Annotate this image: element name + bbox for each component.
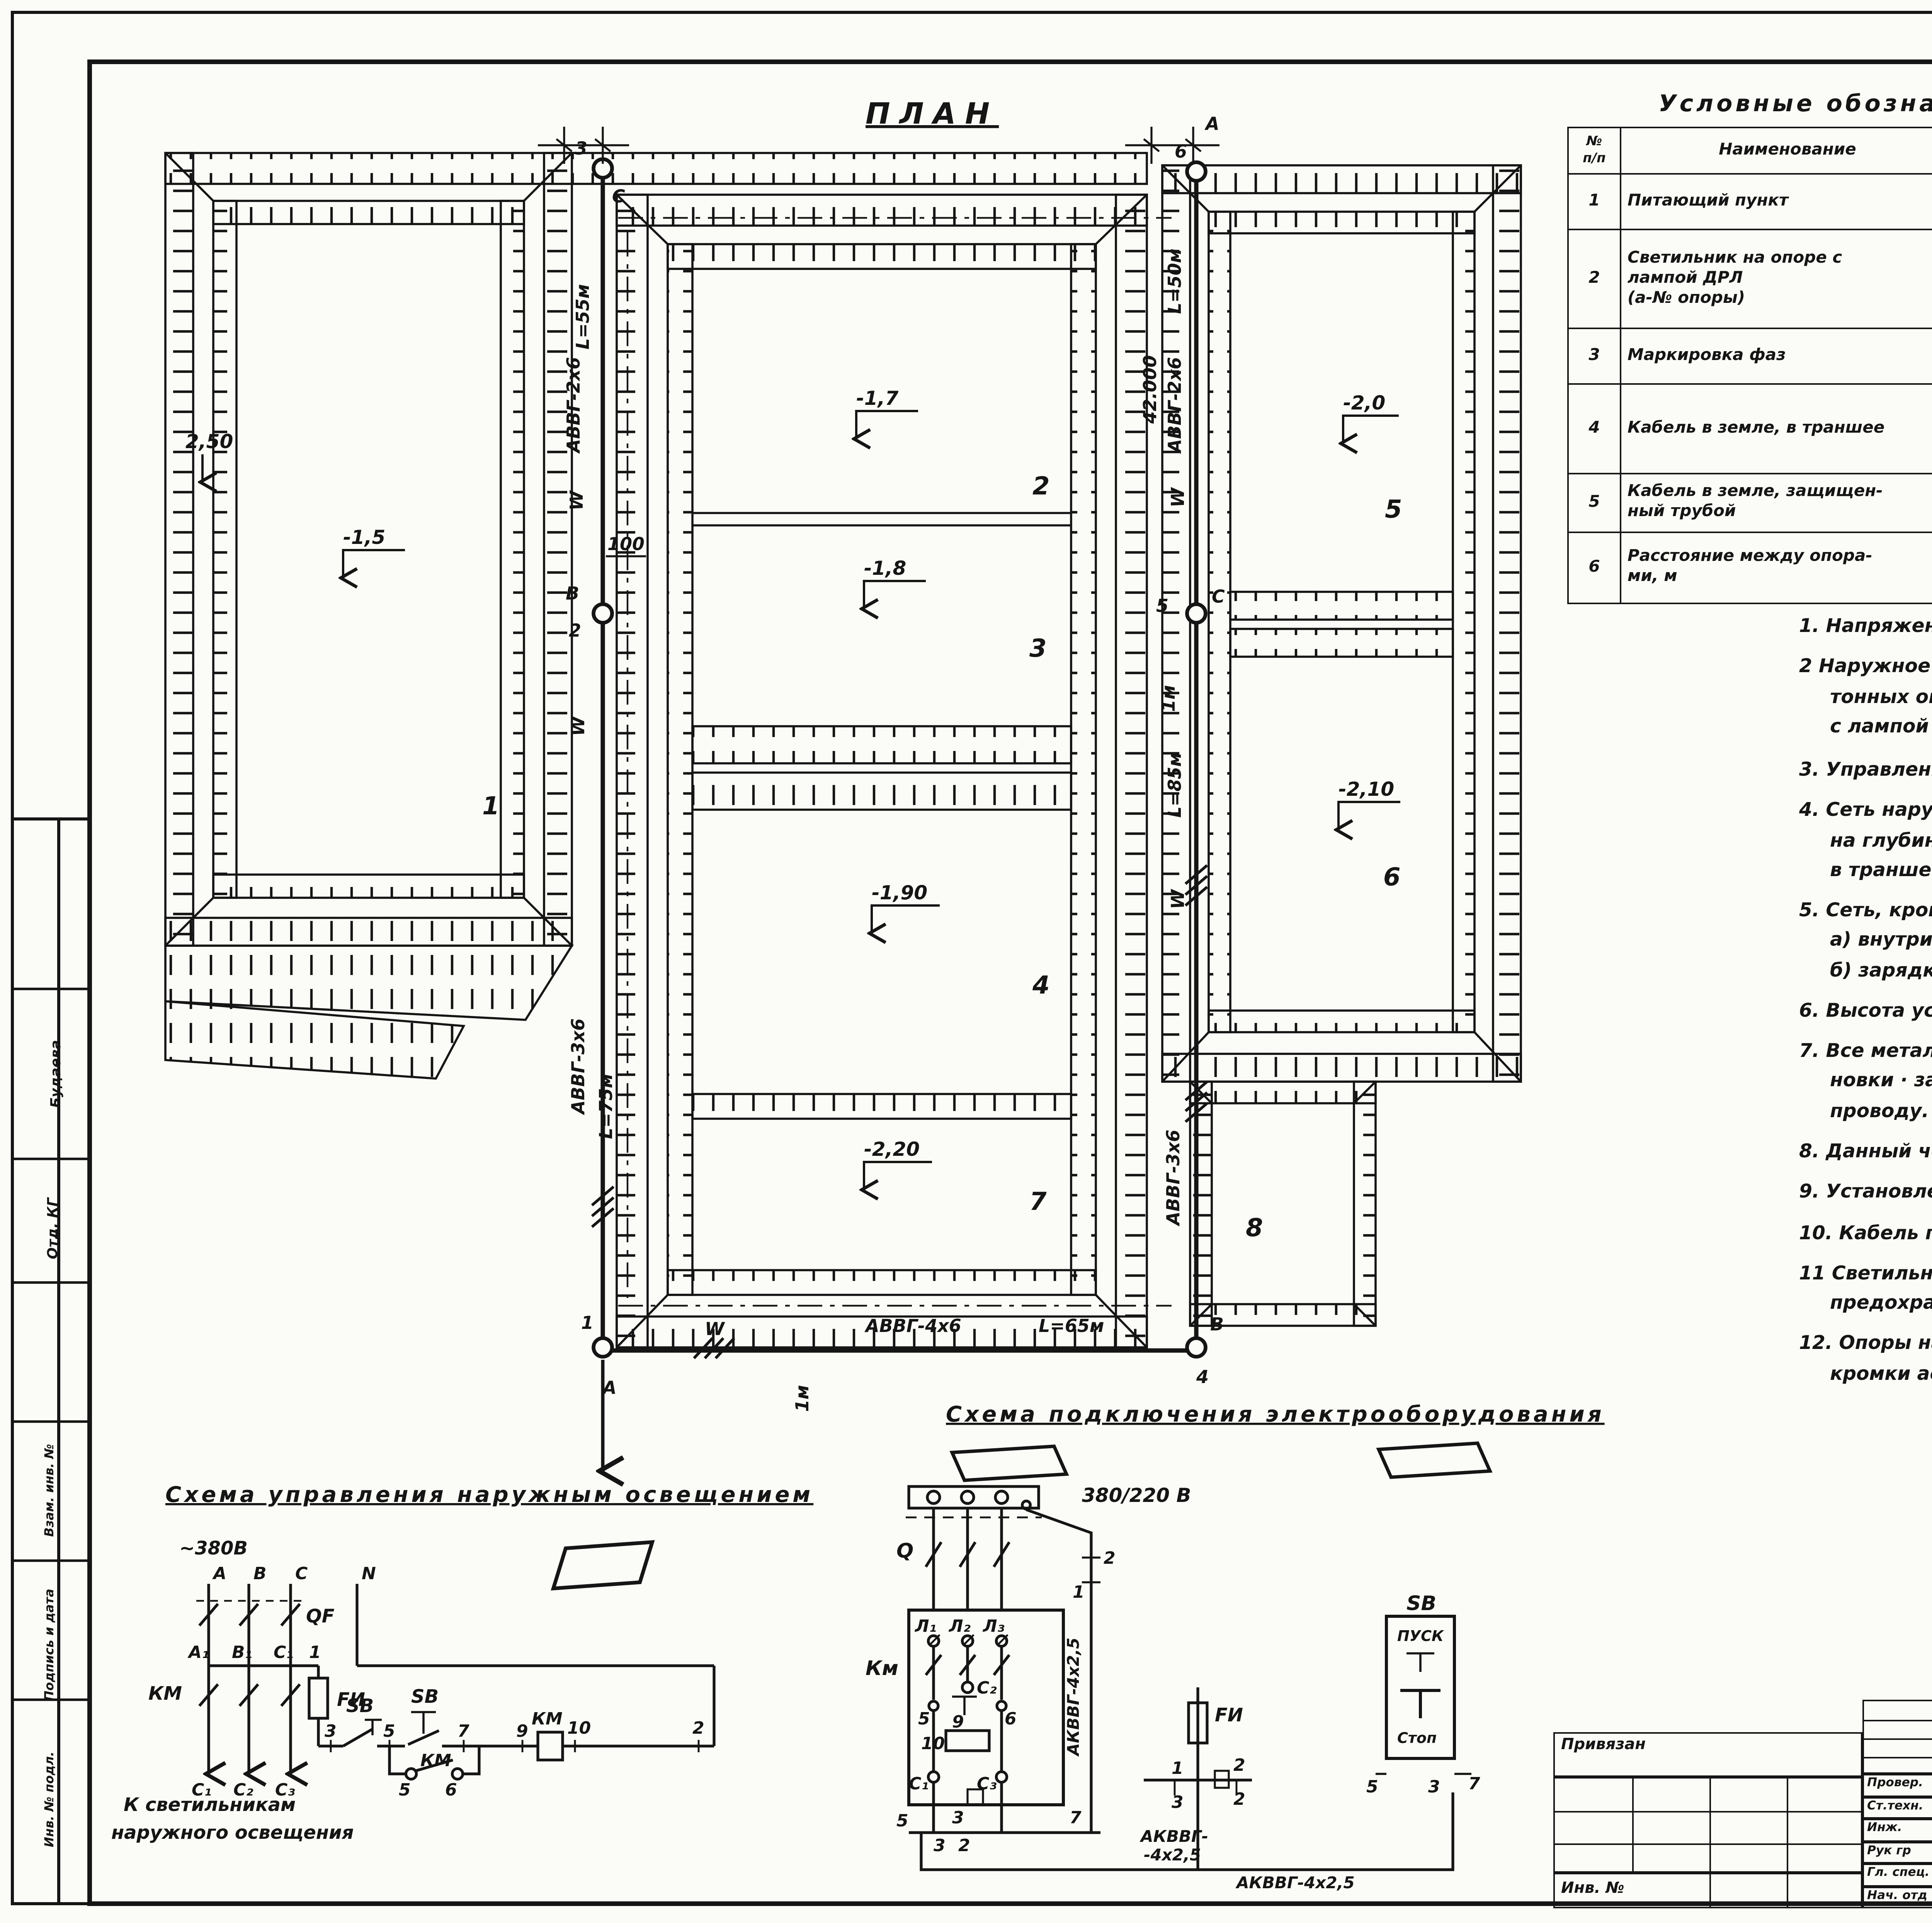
s2-s3: 3	[1428, 1777, 1440, 1797]
legend-r6-name: Расстояние между опора- ми, м	[1621, 532, 1932, 603]
s1-n2: 2	[692, 1718, 704, 1738]
level-250: 2,50	[185, 430, 233, 453]
legend-r6-num: 6	[1568, 532, 1621, 603]
s2-l1: Л₁	[914, 1616, 937, 1636]
pond-4-number: 4	[1032, 971, 1050, 1000]
legend-r4-name: Кабель в земле, в траншее	[1621, 384, 1932, 473]
legend-title: Условные обозначения	[1567, 90, 1932, 117]
s2-k9: 9	[952, 1712, 964, 1732]
legend-col-name: Наименование	[1621, 127, 1932, 174]
scheme-control: Схема управления наружным освещением	[111, 1482, 813, 1843]
notes-block: 1. Напряжение сети 380/220в. 2 Наружное …	[1799, 612, 1932, 1400]
note-6: 6. Высота установки светильников на опор…	[1799, 997, 1932, 1026]
pond-embankments	[165, 153, 1521, 1347]
s2-cable3: АКВВГ-4х2,5	[1235, 1873, 1355, 1892]
margin-inv-podl: Инв. № подл.	[43, 1722, 56, 1877]
pole-3-number: 3	[575, 138, 587, 159]
depth-2: -1,7	[856, 387, 899, 409]
s2-tick2: 2	[1104, 1548, 1116, 1568]
note-7: 7. Все металлические нетоковедущие части…	[1799, 1037, 1932, 1126]
note-10: 10. Кабель под дорогой проложить в асбес…	[1799, 1218, 1932, 1248]
legend-r3-name: Маркировка фаз	[1621, 329, 1932, 384]
s1-n10: 10	[567, 1718, 591, 1738]
s2-cable-vertical: АКВВГ-4х2,5	[1064, 1638, 1083, 1757]
s1-neutral: N	[362, 1564, 376, 1583]
dim-1m-right: 1м	[1158, 685, 1179, 712]
cable-l85: L=85м	[1164, 752, 1185, 817]
s2-f1: 1	[1172, 1758, 1184, 1778]
s1-sb2: SB	[411, 1686, 439, 1707]
s1-b1: В₁	[232, 1643, 252, 1662]
cable-avvg3x6-left: АВВГ-3х6	[568, 1018, 588, 1115]
s2-k6: 6	[1005, 1709, 1017, 1729]
legend-r1-num: 1	[1568, 174, 1621, 230]
note-4: 4. Сеть наружного освещения выполнена ка…	[1799, 796, 1932, 885]
s1-qf-label: QF	[306, 1605, 335, 1627]
s1-phase-c: С	[295, 1564, 308, 1583]
pole-4-phase: В	[1210, 1314, 1224, 1335]
depth-4: -1,90	[872, 882, 927, 904]
note-8: 8. Данный чертеж выполнен на основании г…	[1799, 1137, 1932, 1167]
cable-w3: W	[1167, 487, 1188, 507]
cable-avvg2x6-left: АВВГ-2х6	[563, 357, 584, 454]
scheme-connection: Схема подключения электрооборудования	[866, 1402, 1605, 1892]
s2-pusk: ПУСК	[1397, 1627, 1444, 1644]
pole-5-phase: С	[1212, 586, 1225, 607]
margin-otd-kg: Отд. КГ	[46, 1159, 62, 1298]
note-11: 11 Светильники на опорах присоединяются …	[1799, 1259, 1932, 1318]
s2-b3: 3	[952, 1808, 964, 1828]
s1-c1: С₁	[274, 1643, 294, 1662]
pond-7-number: 7	[1029, 1187, 1047, 1216]
s2-l2: Л₂	[948, 1616, 971, 1636]
pole-6-number: 6	[1175, 141, 1187, 162]
plan-title: ПЛАН	[866, 96, 999, 131]
s2-voltage: 380/220 В	[1082, 1484, 1191, 1507]
depth-5: -2,0	[1343, 392, 1385, 414]
legend-r4-num: 4	[1568, 384, 1621, 473]
pond-3-number: 3	[1029, 634, 1047, 663]
s2-cc3: С₃	[977, 1774, 997, 1794]
s2-fuse-label: FИ	[1215, 1704, 1243, 1726]
depth-3: -1,8	[864, 557, 906, 579]
margin-podpis: Подпись и дата	[43, 1568, 56, 1722]
s2-s7: 7	[1468, 1774, 1480, 1794]
margin-vzam: Взам. инв. №	[43, 1413, 56, 1568]
s1-sb1: SB	[346, 1695, 374, 1717]
pond-6-number: 6	[1383, 863, 1401, 892]
s1-km-label: КМ	[148, 1683, 182, 1704]
s1-voltage: ~380В	[179, 1537, 248, 1559]
s2-stop: Стоп	[1397, 1729, 1437, 1746]
s2-cable2-line2: -4х2,5	[1144, 1845, 1201, 1864]
cable-w5: W	[705, 1318, 725, 1339]
s2-sb-label: SB	[1406, 1592, 1436, 1615]
margin-budaeva: Будаева	[49, 1004, 65, 1143]
pond-8-number: 8	[1246, 1214, 1263, 1242]
s1-n7: 7	[457, 1721, 469, 1741]
pole-3-phase: С	[612, 186, 625, 207]
s1-n5: 5	[383, 1721, 395, 1741]
scheme2-title: Схема подключения электрооборудования	[946, 1402, 1605, 1427]
cable-l65: L=65м	[1039, 1315, 1104, 1336]
pole-2-phase: В	[566, 583, 579, 604]
pole-4-number: 4	[1196, 1366, 1209, 1387]
dim-100: 100	[607, 533, 645, 554]
s2-k10: 10	[921, 1734, 945, 1753]
note-3-text: 3. Управление наружным освещением произв…	[1799, 759, 1932, 780]
s1-phase-a: А	[212, 1564, 226, 1583]
legend-r5-num: 5	[1568, 473, 1621, 532]
note-3: 3. Управление наружным освещением произв…	[1799, 753, 1932, 785]
depth-1: -1,5	[343, 526, 385, 549]
depth-6: -2,10	[1338, 778, 1394, 800]
dim-1m-bottom: 1м	[792, 1385, 813, 1412]
s1-km-aux-label: КМ	[420, 1751, 451, 1770]
s2-cable2-line1: АКВВГ-	[1139, 1827, 1208, 1846]
note-5: 5. Сеть, кроме отмеченной, выполнить: а)…	[1799, 897, 1932, 986]
s2-b7: 7	[1070, 1808, 1082, 1828]
pole-1-phase: А	[602, 1377, 617, 1398]
note-2: 2 Наружное освещение территории запроект…	[1799, 652, 1932, 742]
s1-caption-2: наружного освещения	[111, 1822, 354, 1843]
legend-col-num: № п/п	[1568, 127, 1621, 174]
legend-table: № п/п Наименование Обозначение 1 Питающи…	[1567, 127, 1932, 604]
legend-r5-name: Кабель в земле, защищен- ный трубой	[1621, 473, 1932, 532]
cable-l55: L=55м	[572, 284, 593, 349]
legend-r3-num: 3	[1568, 329, 1621, 384]
pole-1-number: 1	[581, 1312, 594, 1333]
s2-k5: 5	[918, 1709, 930, 1729]
note-1: 1. Напряжение сети 380/220в.	[1799, 612, 1932, 642]
s1-caption-1: К светильникам	[124, 1794, 296, 1816]
chainage-42000: 42.000	[1139, 355, 1160, 424]
note-12: 12. Опоры наружного освещения установить…	[1799, 1329, 1932, 1389]
s2-km-label: Км	[866, 1657, 898, 1680]
s2-f2: 2	[1233, 1755, 1245, 1775]
s1-a1: А₁	[187, 1643, 209, 1662]
cable-avvg2x6-right: АВВГ-2х6	[1164, 357, 1185, 454]
legend-r1-name: Питающий пункт	[1621, 174, 1932, 230]
cable-l75: L=75м	[595, 1074, 616, 1139]
s2-s5: 5	[1366, 1777, 1378, 1797]
s2-f3: 3	[1172, 1792, 1184, 1812]
s1-n6b: 6	[445, 1780, 457, 1800]
cable-avvg3x6-right: АВВГ-3х6	[1163, 1130, 1184, 1227]
phase-a-top: А	[1204, 113, 1219, 134]
cable-l50: L=50м	[1164, 248, 1185, 314]
cable-w2: W	[568, 715, 588, 736]
s2-q-label: Q	[896, 1539, 913, 1563]
cable-w4: W	[1167, 888, 1188, 909]
pond-2-number: 2	[1032, 472, 1050, 501]
s2-b3b: 3	[934, 1836, 946, 1855]
s1-phase-b: В	[253, 1564, 267, 1583]
cable-w1: W	[566, 490, 587, 510]
s1-n5b: 5	[399, 1780, 411, 1800]
pond-5-number: 5	[1385, 495, 1402, 524]
pole-5-number: 5	[1156, 595, 1168, 616]
s2-f2b: 2	[1233, 1789, 1245, 1809]
pond-1-number: 1	[482, 792, 500, 821]
legend-r2-num: 2	[1568, 230, 1621, 329]
cable-avvg4x6: АВВГ-4х6	[864, 1315, 961, 1336]
s2-cc1: С₁	[909, 1774, 929, 1794]
s2-b5: 5	[896, 1811, 908, 1831]
s1-n9: 9	[516, 1721, 528, 1741]
s2-b2b: 2	[958, 1836, 970, 1855]
s2-l3: Л₃	[982, 1616, 1005, 1636]
note-9: 9. Установленная мощность ~1,5 квт	[1799, 1178, 1932, 1208]
s1-n3: 3	[325, 1721, 337, 1741]
s2-tick1: 1	[1073, 1582, 1085, 1602]
legend-block: Условные обозначения № п/п Наименование …	[1567, 90, 1932, 604]
pole-2-number: 2	[569, 620, 581, 641]
drawing-sheet: ПЛАН 1 2 3 4 7 5 6 8 -1,5 -1,7 -1,8 -1,9…	[0, 0, 1932, 1923]
legend-r2-name: Светильник на опоре с лампой ДРЛ (а-№ оп…	[1621, 230, 1932, 329]
scheme1-title: Схема управления наружным освещением	[165, 1482, 813, 1507]
s1-n1: 1	[309, 1643, 321, 1662]
s2-c2: С₂	[977, 1678, 997, 1698]
s1-km-coil-label: КМ	[532, 1709, 563, 1729]
depth-7: -2,20	[864, 1138, 920, 1160]
